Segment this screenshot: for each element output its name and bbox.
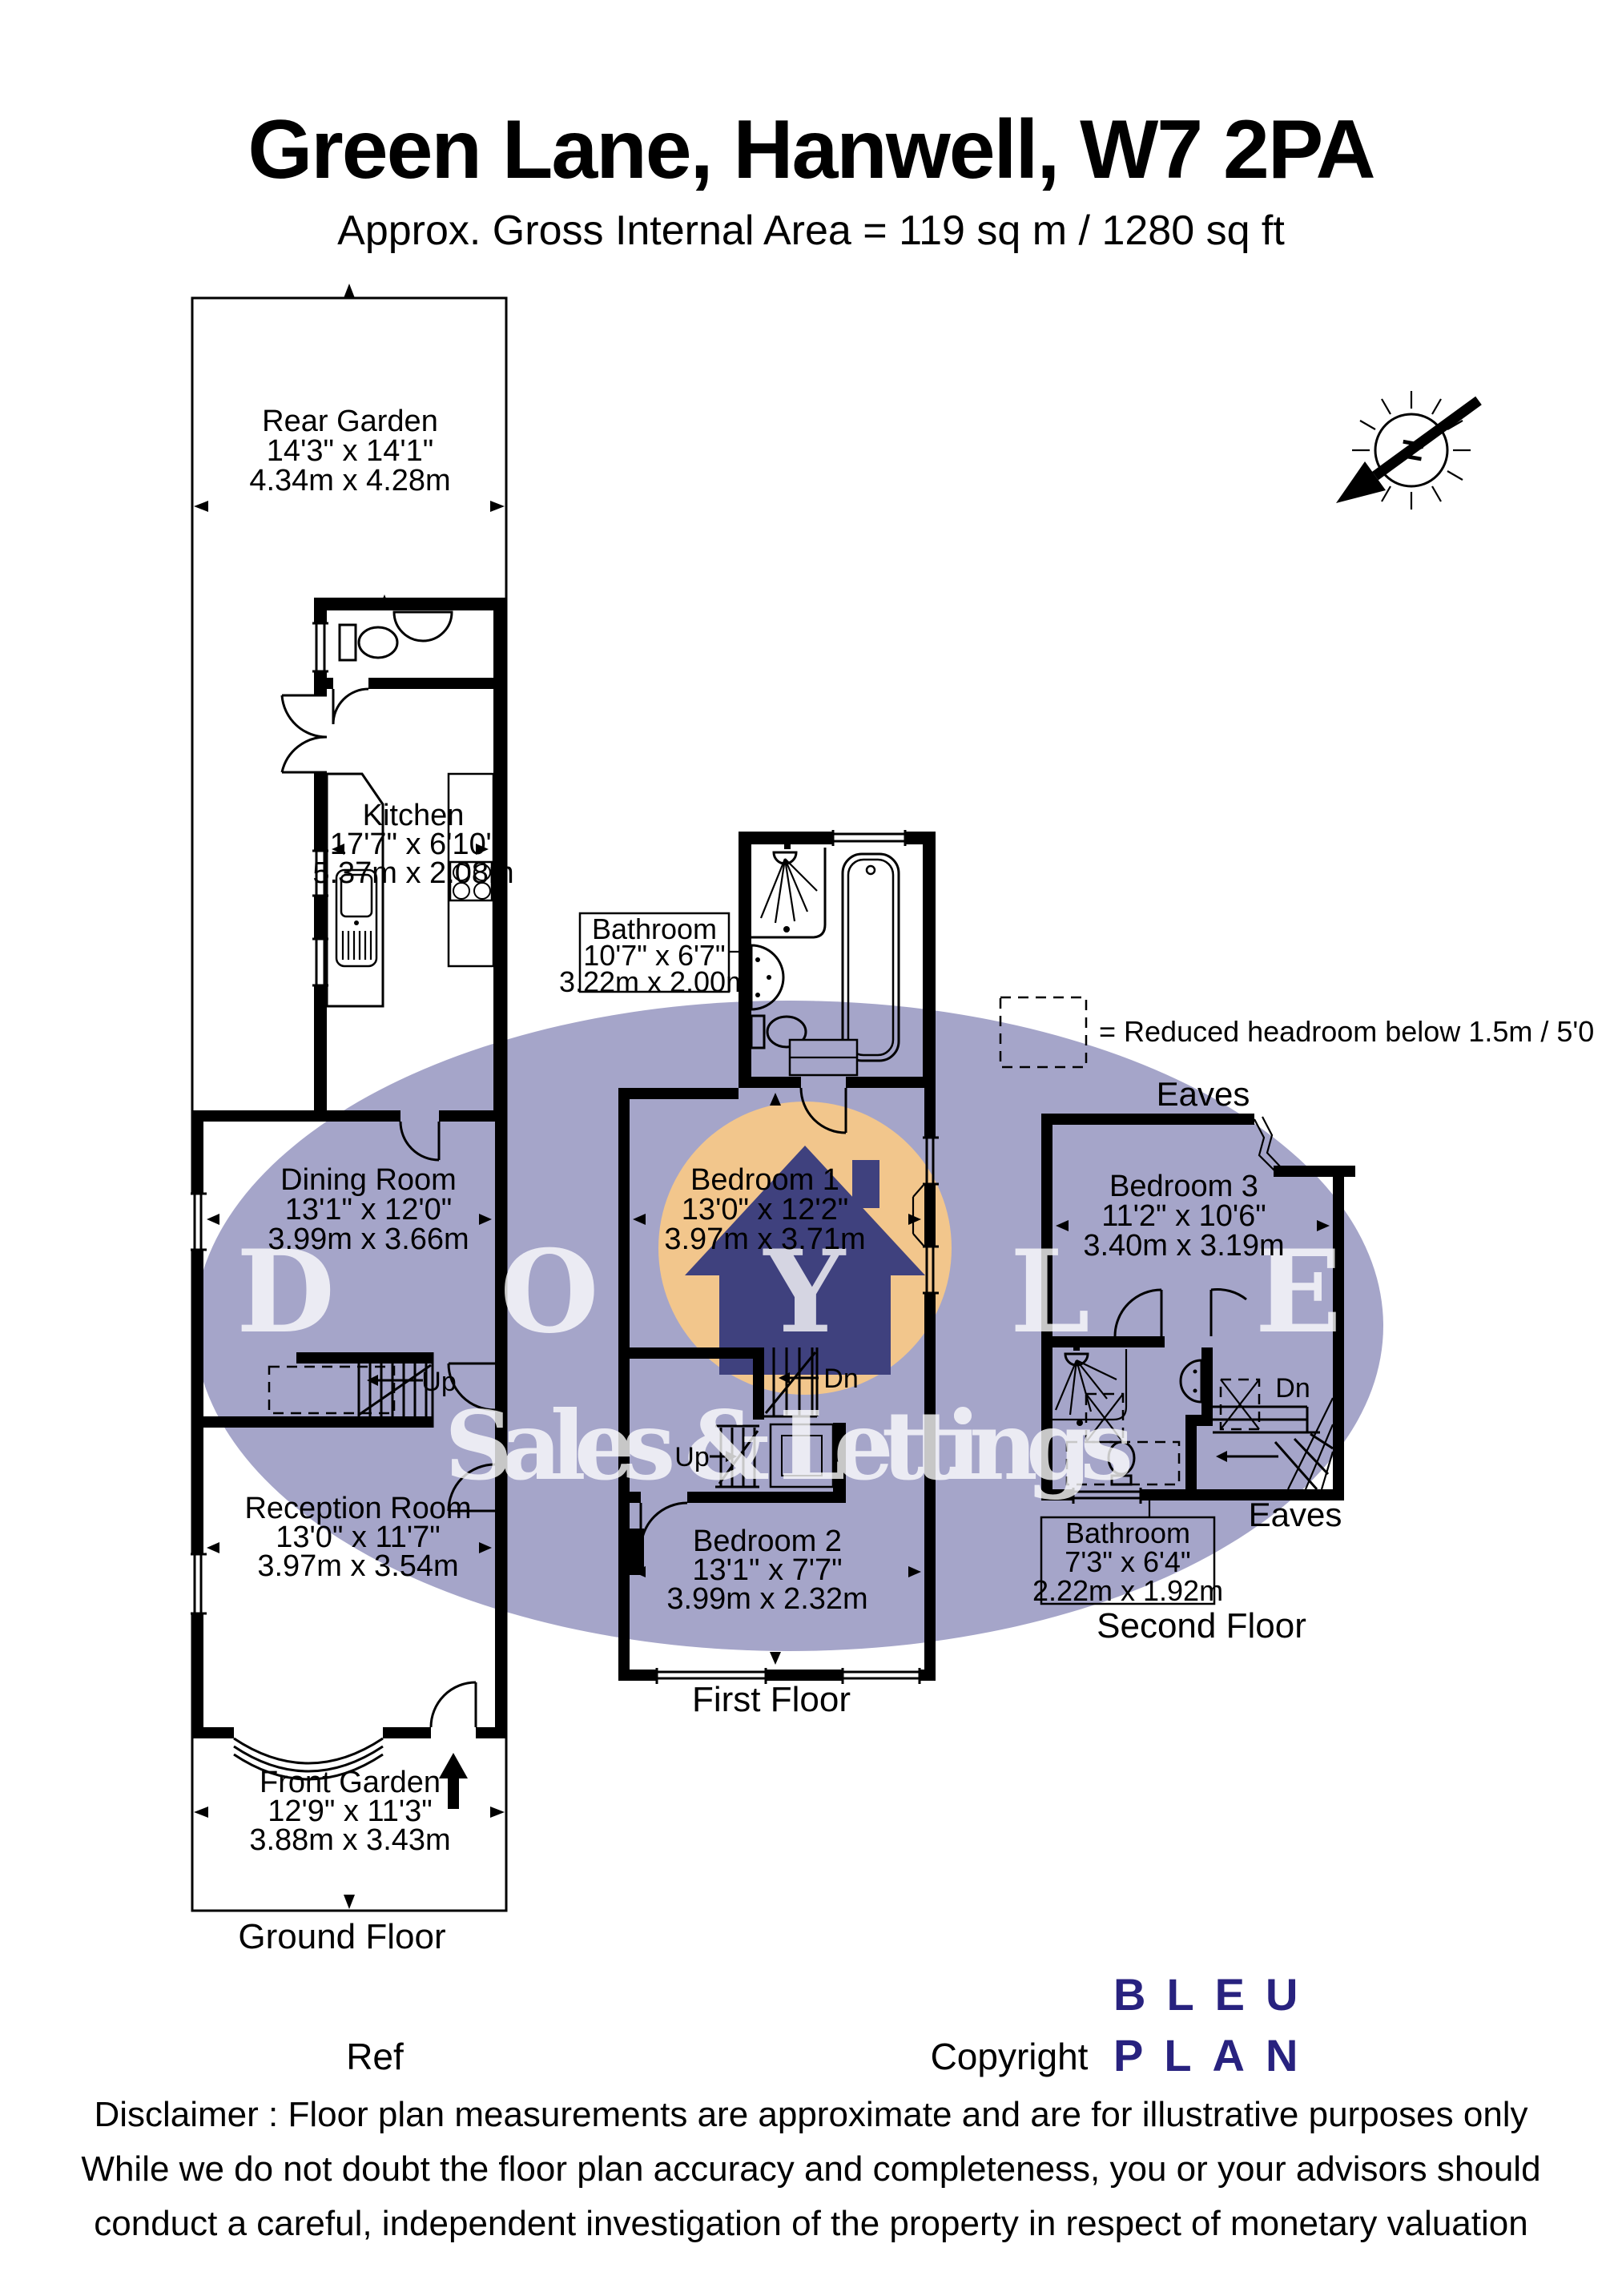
room-dim-metric: 3.40m x 3.19m <box>1083 1229 1284 1263</box>
floorplan-page: Green Lane, Hanwell, W7 2PA Approx. Gros… <box>0 0 1622 2296</box>
floor-plan-drawing: DOYLE Sales & Lettings Rear Garden 14'3"… <box>0 0 1622 2296</box>
room-name: Dining Room <box>280 1163 457 1197</box>
wc-toilet-cistern <box>340 625 356 660</box>
floor-label-first: First Floor <box>692 1680 851 1719</box>
reduced-headroom-legend-text: = Reduced headroom below 1.5m / 5'0 <box>1099 1015 1594 1048</box>
disclaimer-line-1: Disclaimer : Floor plan measurements are… <box>0 2088 1622 2142</box>
stairs-dn-label: Dn <box>1275 1373 1310 1404</box>
stairs-dn-label: Dn <box>823 1364 858 1394</box>
disclaimer-line-3: conduct a careful, independent investiga… <box>0 2197 1622 2251</box>
room-dim-metric: 5.37m x 2.08m <box>312 856 513 890</box>
room-name: Bedroom 1 <box>690 1163 839 1197</box>
room-dim-imperial: 11'2" x 10'6" <box>1101 1199 1266 1233</box>
room-dim-metric: 3.22m x 2.00m <box>559 965 750 998</box>
bleu-plan-logo: BLEU PLAN <box>1113 1964 1318 2086</box>
room-dim-metric: 3.99m x 3.66m <box>268 1223 469 1256</box>
stairs-up-label: Up <box>674 1442 709 1472</box>
ref-label: Ref <box>311 2035 439 2078</box>
room-dim-imperial: 7'3" x 6'4" <box>1065 1545 1190 1578</box>
floor-label-second: Second Floor <box>1097 1606 1306 1645</box>
entrance-arrow <box>439 1753 468 1809</box>
room-name: Bedroom 3 <box>1109 1170 1258 1203</box>
eaves-label: Eaves <box>1157 1075 1250 1113</box>
logo-line-1: BLEU <box>1113 1964 1318 2025</box>
room-dim-metric: 3.97m x 3.71m <box>664 1223 865 1256</box>
disclaimer-line-2: While we do not doubt the floor plan acc… <box>0 2142 1622 2197</box>
floor-label-ground: Ground Floor <box>238 1917 445 1956</box>
wc-sink <box>394 612 452 641</box>
watermark-tagline: Sales & Lettings <box>445 1390 1133 1501</box>
room-dim-metric: 3.99m x 2.32m <box>666 1582 867 1616</box>
copyright-label: Copyright <box>913 2035 1105 2078</box>
eaves-label: Eaves <box>1249 1496 1342 1533</box>
stairs-up-label: Up <box>421 1367 456 1397</box>
room-dim-imperial: 13'1" x 12'0" <box>285 1193 452 1227</box>
room-dim-metric: 4.34m x 4.28m <box>249 464 450 497</box>
room-dim-imperial: 13'0" x 12'2" <box>682 1193 848 1227</box>
room-dim-metric: 3.97m x 3.54m <box>257 1549 458 1583</box>
room-name: Bathroom <box>1065 1517 1190 1549</box>
logo-line-2: PLAN <box>1113 2025 1318 2086</box>
disclaimer: Disclaimer : Floor plan measurements are… <box>0 2088 1622 2251</box>
room-name: Rear Garden <box>262 405 438 438</box>
room-dim-metric: 2.22m x 1.92m <box>1032 1574 1223 1607</box>
room-dim-metric: 3.88m x 3.43m <box>249 1823 450 1857</box>
wc-toilet-bowl <box>359 627 397 658</box>
room-dim-imperial: 14'3" x 14'1" <box>267 434 433 468</box>
